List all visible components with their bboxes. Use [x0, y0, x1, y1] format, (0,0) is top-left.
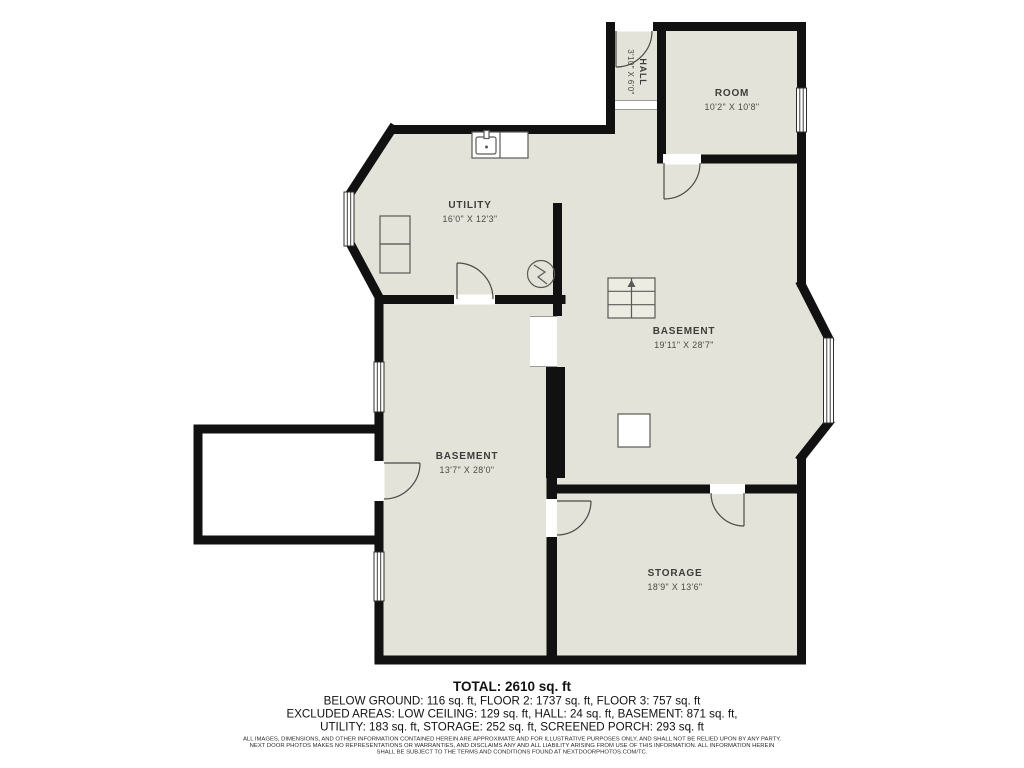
window-icon — [374, 362, 384, 412]
window-icon — [344, 192, 354, 246]
svg-text:STORAGE: STORAGE — [648, 568, 703, 579]
summary-line-3: UTILITY: 183 sq. ft, STORAGE: 252 sq. ft… — [320, 721, 705, 734]
summary-line-1: BELOW GROUND: 116 sq. ft, FLOOR 2: 1737 … — [324, 695, 701, 708]
svg-text:HALL: HALL — [638, 58, 648, 85]
window-icon — [797, 88, 807, 132]
svg-text:BASEMENT: BASEMENT — [436, 451, 499, 462]
svg-text:UTILITY: UTILITY — [448, 200, 491, 211]
disclaimer-line-1: ALL IMAGES, DIMENSIONS, AND OTHER INFORM… — [243, 737, 781, 743]
svg-text:10'2" X 10'8": 10'2" X 10'8" — [705, 102, 760, 112]
stairs-icon — [608, 278, 655, 318]
svg-text:BASEMENT: BASEMENT — [653, 326, 716, 337]
svg-text:13'7" X 28'0": 13'7" X 28'0" — [440, 465, 495, 475]
svg-text:18'9" X 13'6": 18'9" X 13'6" — [648, 582, 703, 592]
svg-text:ROOM: ROOM — [715, 88, 749, 99]
area-summary: TOTAL: 2610 sq. ft BELOW GROUND: 116 sq.… — [286, 679, 737, 734]
svg-text:16'0" X 12'3": 16'0" X 12'3" — [443, 214, 498, 224]
disclaimer-line-2: NEXT DOOR PHOTOS MAKES NO REPRESENTATION… — [250, 743, 775, 749]
window-icon — [374, 552, 384, 601]
disclaimer: ALL IMAGES, DIMENSIONS, AND OTHER INFORM… — [243, 737, 781, 756]
sink-icon — [472, 131, 528, 159]
total-area: TOTAL: 2610 sq. ft — [453, 679, 572, 694]
disclaimer-line-3: SHALL BE SUBJECT TO THE TERMS AND CONDIT… — [377, 750, 648, 756]
window-icon — [824, 338, 834, 423]
support-post-icon — [618, 414, 650, 447]
svg-text:19'11" X 28'7": 19'11" X 28'7" — [654, 340, 714, 350]
floor-plan-canvas: HALL 3'10" X 6'0" ROOM 10'2" X 10'8" UTI… — [0, 0, 1024, 768]
floor-areas — [349, 22, 833, 660]
svg-text:3'10" X 6'0": 3'10" X 6'0" — [626, 49, 635, 95]
summary-line-2: EXCLUDED AREAS: LOW CEILING: 129 sq. ft,… — [286, 708, 737, 721]
hall-room-floor — [606, 22, 806, 164]
screened-porch — [198, 429, 379, 540]
